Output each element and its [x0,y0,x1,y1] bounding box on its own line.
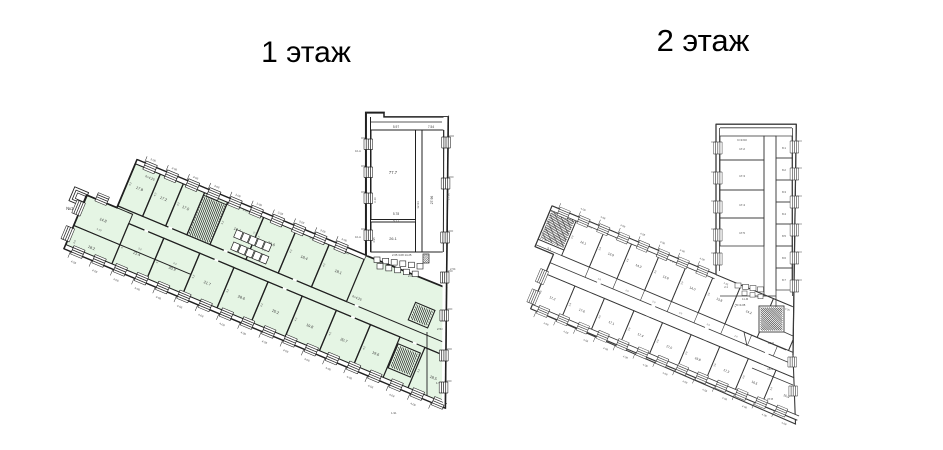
svg-text:2.65 3.08 14.25: 2.65 3.08 14.25 [392,253,412,257]
svg-text:27.96: 27.96 [447,193,451,200]
svg-text:17.5: 17.5 [739,231,745,235]
svg-text:1.7: 1.7 [380,261,384,265]
svg-text:17.3: 17.3 [739,174,745,178]
svg-text:8.2: 8.2 [782,168,786,172]
svg-text:7.54: 7.54 [428,125,434,129]
svg-text:8.3: 8.3 [782,190,786,194]
svg-text:2.1: 2.1 [724,285,728,289]
svg-text:10-A: 10-A [355,235,361,239]
svg-text:77.7: 77.7 [389,170,398,175]
svg-text:8.7: 8.7 [782,278,786,282]
svg-text:1 этаж: 1 этаж [261,36,351,69]
svg-text:h=4.05: h=4.05 [737,303,746,307]
svg-text:8.6: 8.6 [782,256,786,260]
svg-text:5.17: 5.17 [393,219,399,223]
svg-text:17.4: 17.4 [739,203,745,207]
svg-text:1-91: 1-91 [391,411,397,415]
svg-text:27.96: 27.96 [430,196,434,205]
svg-text:h=3.63: h=3.63 [737,138,747,142]
svg-text:26.1: 26.1 [389,237,396,241]
svg-text:10-A: 10-A [355,149,361,153]
svg-text:5.97: 5.97 [393,125,399,129]
svg-text:6.16: 6.16 [373,197,377,203]
svg-text:27.8: 27.8 [767,397,773,401]
svg-text:17.2: 17.2 [739,147,745,151]
svg-text:8.1: 8.1 [782,146,786,150]
svg-text:8.4: 8.4 [782,212,786,216]
svg-text:2.54: 2.54 [450,267,456,271]
svg-text:2.0: 2.0 [408,274,412,278]
svg-text:11-M: 11-M [742,297,749,301]
svg-text:16.4: 16.4 [767,367,773,371]
svg-text:8.5: 8.5 [782,234,786,238]
svg-text:5.78: 5.78 [393,212,399,216]
svg-text:12.93: 12.93 [416,201,420,209]
svg-text:2.54: 2.54 [437,327,443,331]
svg-text:2 этаж: 2 этаж [657,23,750,58]
